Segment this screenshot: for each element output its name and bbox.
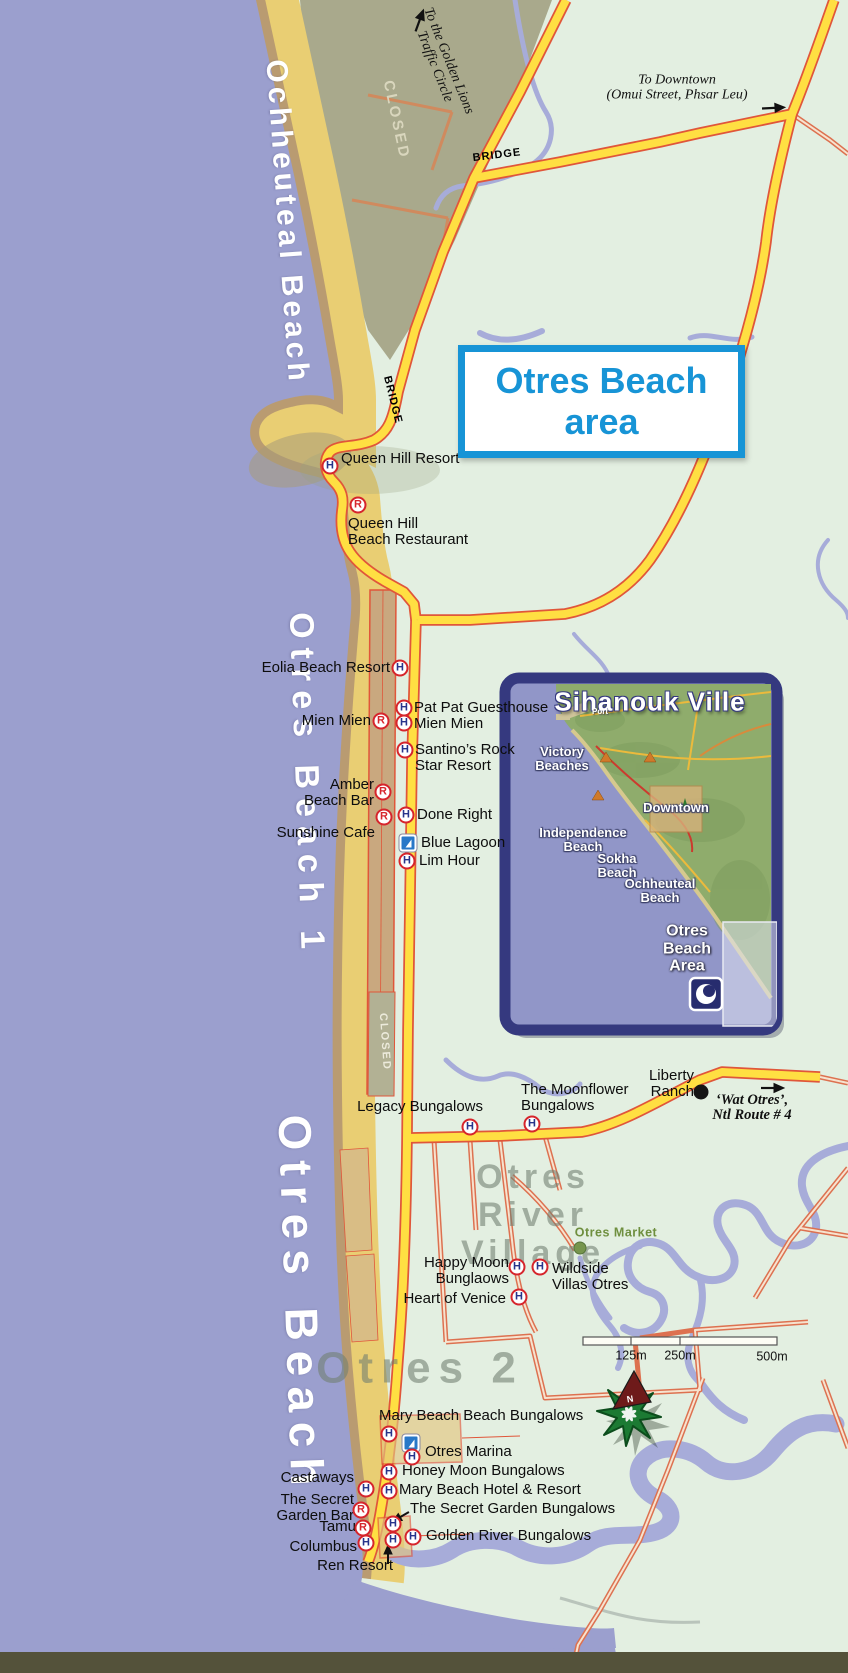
inset-independence-label: Independence Beach — [539, 826, 626, 854]
inset-title: Sihanouk Ville — [554, 688, 745, 715]
otres-marina-label: Otres Marina — [425, 1444, 512, 1460]
amber-beach-bar-label: Amber Beach Bar — [304, 777, 374, 809]
wildside-villas-marker: H — [532, 1259, 549, 1276]
inset-port-label: Port — [592, 708, 608, 716]
queen-hill-restaurant-label: Queen Hill Beach Restaurant — [348, 516, 468, 548]
eolia-beach-resort-label: Eolia Beach Resort — [262, 660, 390, 676]
heart-of-venice-label: Heart of Venice — [403, 1291, 506, 1307]
sunshine-cafe-marker: R — [376, 809, 393, 826]
pat-pat-guesthouse-label: Pat Pat Guesthouse — [414, 700, 548, 716]
santinos-rock-star-marker: H — [397, 742, 414, 759]
ren-resort-label: Ren Resort — [317, 1558, 393, 1574]
wildside-villas-label: Wildside Villas Otres — [552, 1261, 628, 1293]
mien-mien-label-left: Mien Mien — [302, 713, 371, 729]
castaways-label: Castaways — [281, 1470, 354, 1486]
queen-hill-restaurant-marker: R — [350, 497, 367, 514]
castaways-marker: H — [358, 1481, 375, 1498]
legacy-bungalows-marker: H — [462, 1119, 479, 1136]
closed-label-mid: CLOSED — [376, 1013, 392, 1072]
inset-ochheuteal-label: Ochheuteal Beach — [625, 877, 696, 905]
secret-garden-bar-marker: R — [353, 1502, 370, 1519]
mary-beach-hotel-label: Mary Beach Hotel & Resort — [399, 1482, 581, 1498]
sailboat-icon — [405, 839, 411, 847]
queen-hill-resort-label: Queen Hill Resort — [341, 451, 459, 467]
eolia-beach-resort-marker: H — [392, 660, 409, 677]
happy-moon-label: Happy Moon Bunglaows — [424, 1255, 509, 1287]
bridge-label-mid: BRIDGE — [380, 375, 403, 425]
queen-hill-resort-marker: H — [322, 458, 339, 475]
legacy-bungalows-label: Legacy Bungalows — [357, 1099, 483, 1115]
downtown-direction: To Downtown (Omui Street, Phsar Leu) — [606, 73, 747, 102]
heart-of-venice-marker: H — [511, 1289, 528, 1306]
golden-lions-direction: To the Golden Lions Traffic Circle — [406, 6, 476, 122]
sailboat-icon — [408, 1439, 414, 1447]
inset-downtown-label: Downtown — [643, 801, 709, 815]
label-layer: Ochheuteal BeachTo the Golden Lions Traf… — [0, 0, 848, 1673]
done-right-label: Done Right — [417, 807, 492, 823]
ren-resort-marker: H — [385, 1532, 402, 1549]
mien-mien-label-right: Mien Mien — [414, 716, 483, 732]
moonflower-bungalows-marker: H — [524, 1116, 541, 1133]
santinos-rock-star-label: Santino’s Rock Star Resort — [415, 742, 515, 774]
otres-marina-marker: H — [404, 1449, 421, 1466]
otres-beach-map: N — [0, 0, 848, 1673]
blue-lagoon-label: Blue Lagoon — [421, 835, 505, 851]
honey-moon-marker: H — [381, 1464, 398, 1481]
honey-moon-label: Honey Moon Bungalows — [402, 1463, 565, 1479]
columbus-marker: H — [358, 1535, 375, 1552]
map-title-box: Otres Beach area — [458, 345, 745, 458]
lim-hour-marker: H — [399, 853, 416, 870]
otres-beach-name: Otres Beach — [270, 1114, 332, 1496]
secret-garden-bungalows-marker: H — [385, 1516, 402, 1533]
scale-label-125: 125m — [615, 1349, 646, 1362]
inset-otres-area-label: Otres Beach Area — [663, 923, 711, 976]
liberty-ranch-label: Liberty Ranch — [649, 1068, 694, 1100]
otres-market-label: Otres Market — [575, 1226, 657, 1239]
golden-river-label: Golden River Bungalows — [426, 1528, 591, 1544]
amber-beach-bar-marker: R — [375, 784, 392, 801]
done-right-marker: H — [398, 807, 415, 824]
wat-otres-direction: ‘Wat Otres’, Ntl Route # 4 — [712, 1093, 791, 1123]
mien-mien-restaurant-marker: R — [373, 713, 390, 730]
sunshine-cafe-label: Sunshine Cafe — [277, 825, 375, 841]
otres-market-marker — [574, 1242, 587, 1255]
bridge-label-top: BRIDGE — [472, 147, 522, 164]
moonflower-bungalows-label: The Moonflower Bungalows — [521, 1082, 629, 1114]
happy-moon-marker: H — [509, 1259, 526, 1276]
ochheuteal-beach-name: Ochheuteal Beach — [260, 58, 314, 385]
scale-label-500: 500m — [756, 1350, 787, 1363]
golden-river-marker: H — [405, 1529, 422, 1546]
scale-label-250: 250m — [664, 1349, 695, 1362]
otres-2-label: Otres 2 — [316, 1343, 524, 1392]
mary-beach-hotel-marker: H — [381, 1483, 398, 1500]
lim-hour-label: Lim Hour — [419, 853, 480, 869]
columbus-label: Columbus — [289, 1539, 357, 1555]
secret-garden-bungalows-label: The Secret Garden Bungalows — [410, 1501, 615, 1517]
mary-beach-bungalows-label: Mary Beach Beach Bungalows — [379, 1408, 583, 1424]
blue-lagoon-marker — [400, 835, 417, 852]
closed-label-top: CLOSED — [380, 79, 412, 161]
liberty-ranch-marker — [694, 1085, 709, 1100]
mien-mien-hotel-marker: H — [396, 715, 413, 732]
inset-victory-beaches-label: Victory Beaches — [535, 745, 588, 773]
mary-beach-bungalows-marker: H — [381, 1426, 398, 1443]
map-title-line2: area — [564, 402, 638, 442]
tamu-label: Tamu — [319, 1519, 356, 1535]
map-title-line1: Otres Beach — [495, 361, 707, 401]
